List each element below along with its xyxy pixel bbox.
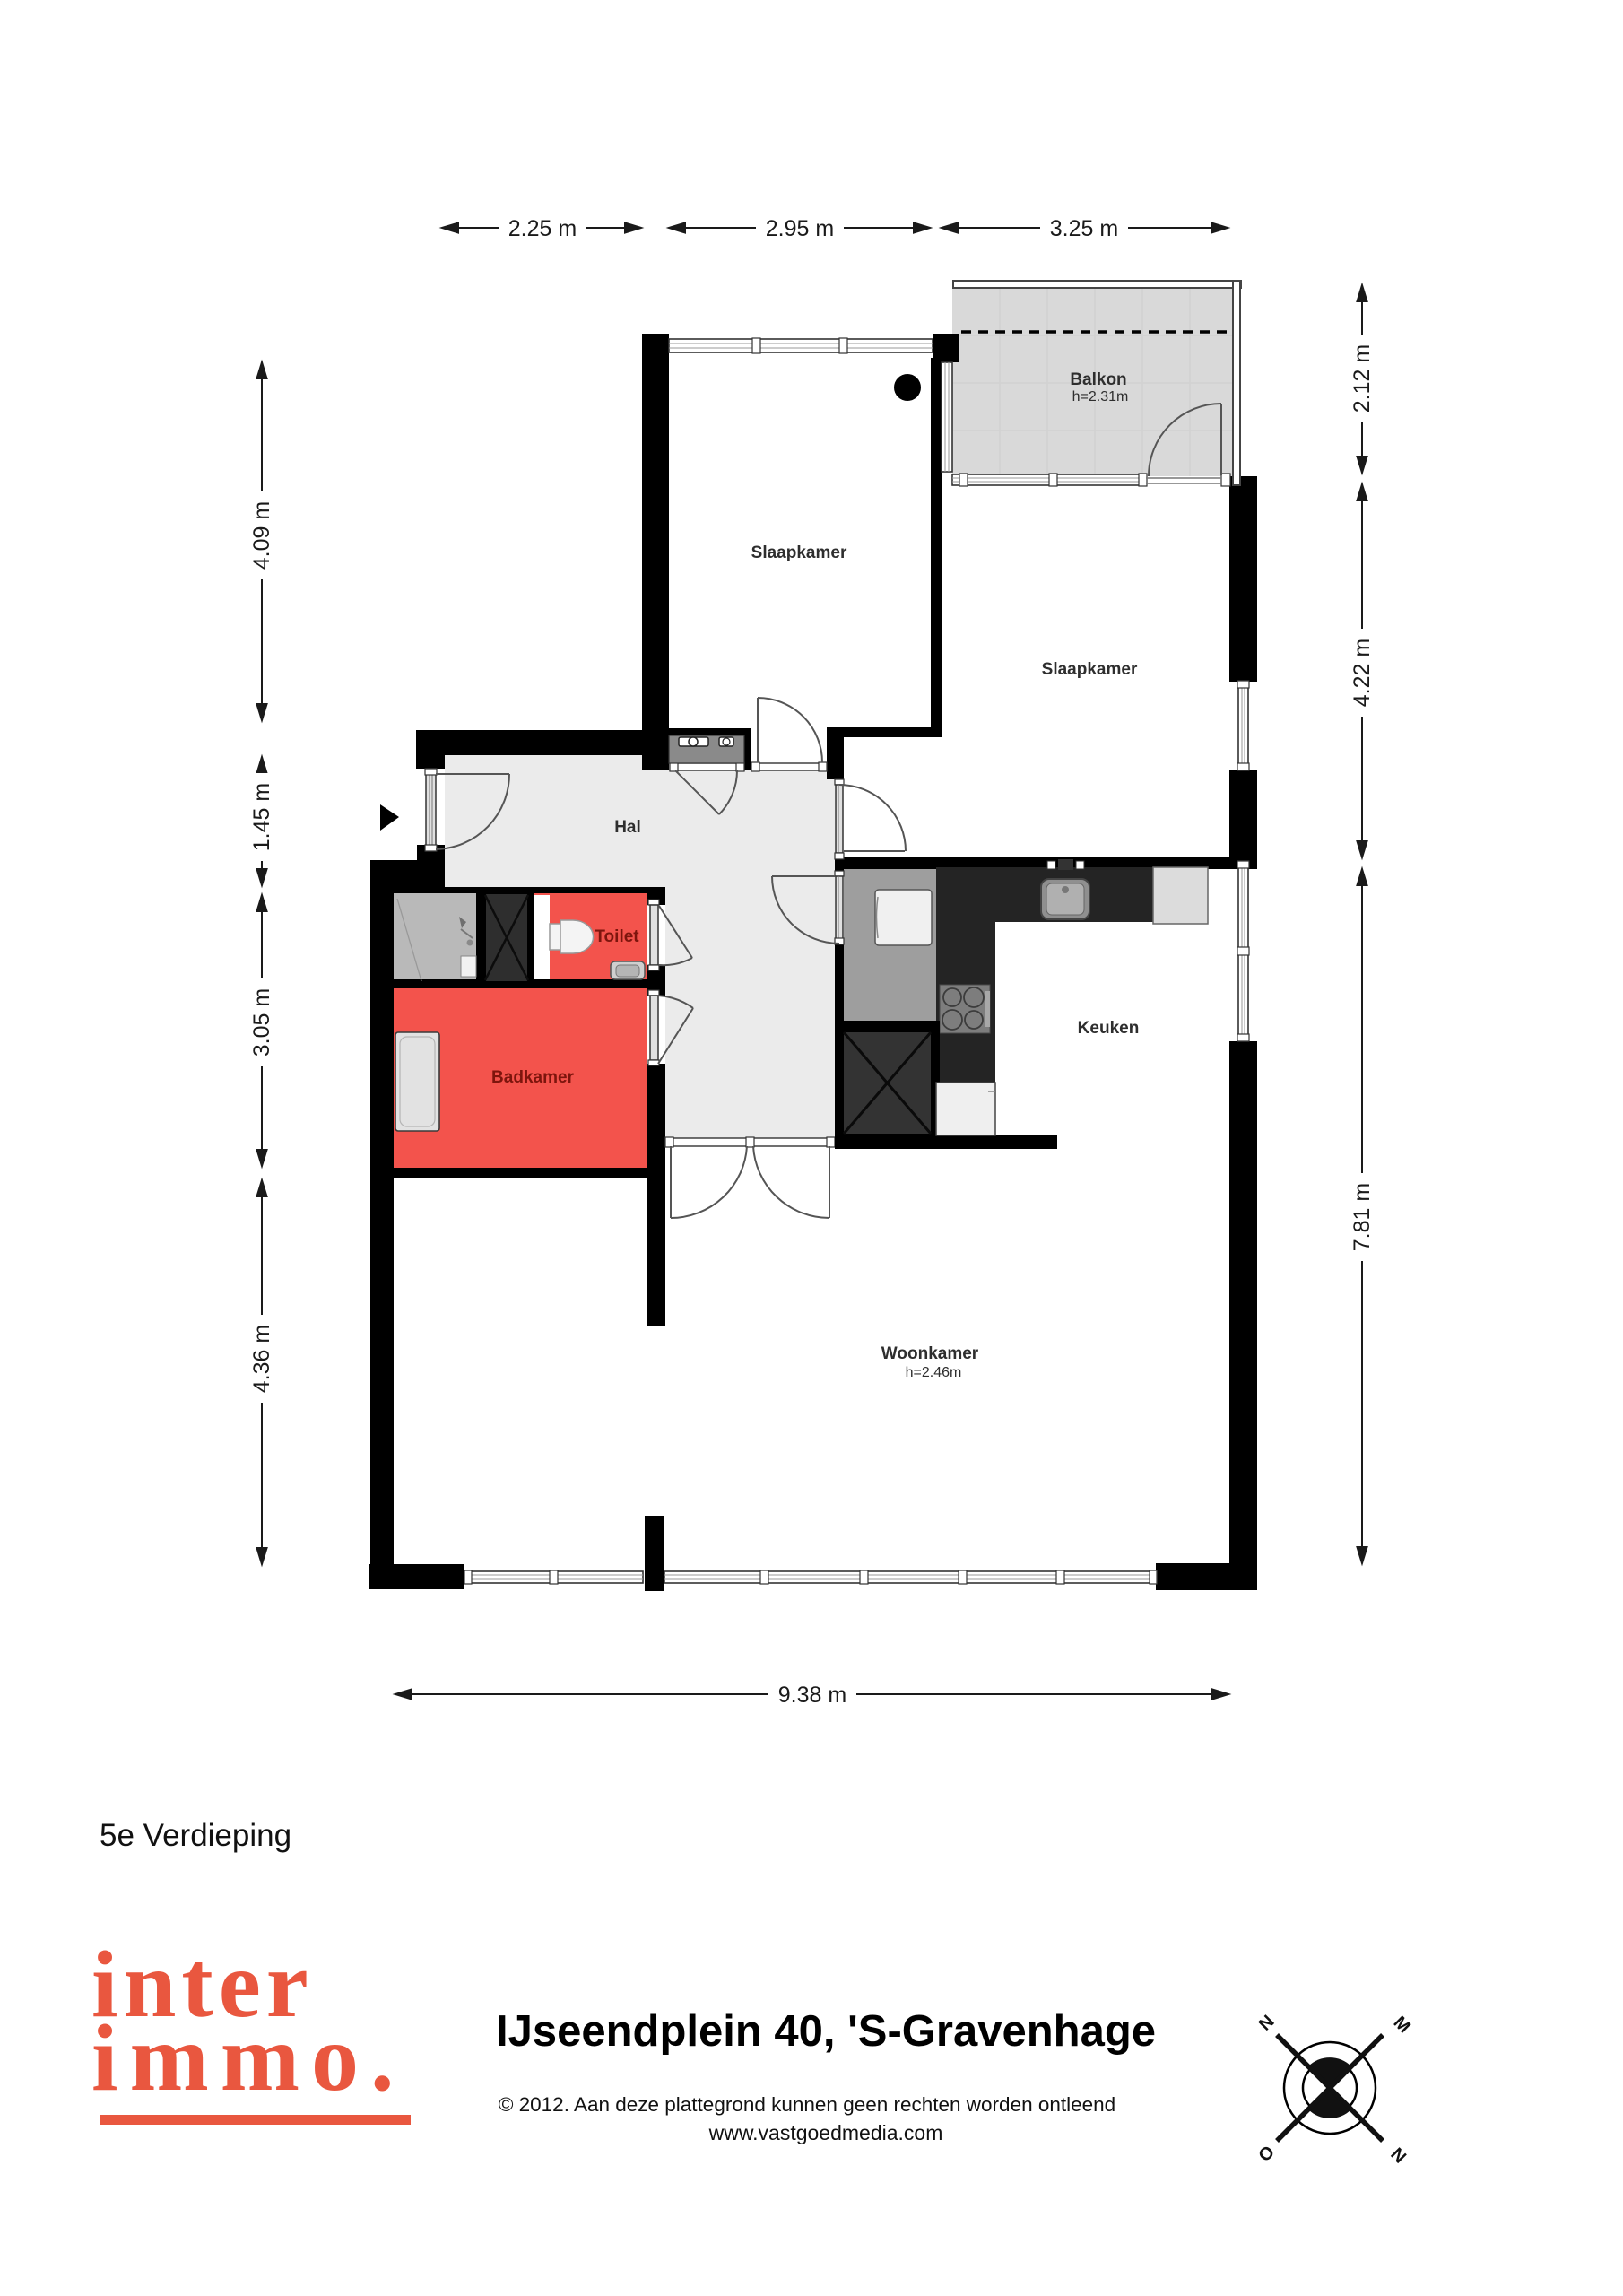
svg-text:h=2.31m: h=2.31m [1072,389,1129,404]
svg-text:Keuken: Keuken [1078,1019,1140,1038]
svg-text:5e Verdieping: 5e Verdieping [100,1818,291,1853]
svg-text:Badkamer: Badkamer [491,1068,574,1087]
svg-text:Slaapkamer: Slaapkamer [1042,660,1138,679]
svg-text:Slaapkamer: Slaapkamer [751,544,847,562]
svg-text:2.95 m: 2.95 m [766,216,834,241]
svg-text:2.25 m: 2.25 m [508,216,577,241]
svg-text:1.45 m: 1.45 m [249,783,274,851]
svg-text:h=2.46m: h=2.46m [906,1365,962,1380]
svg-text:www.vastgoedmedia.com: www.vastgoedmedia.com [708,2121,943,2144]
svg-text:immo.: immo. [91,2005,406,2110]
svg-text:IJseendplein 40, 'S-Gravenhage: IJseendplein 40, 'S-Gravenhage [496,2007,1156,2056]
svg-text:9.38 m: 9.38 m [778,1683,846,1708]
svg-text:3.05 m: 3.05 m [249,988,274,1057]
svg-text:4.22 m: 4.22 m [1350,639,1375,707]
svg-text:4.09 m: 4.09 m [249,501,274,570]
svg-text:3.25 m: 3.25 m [1050,216,1118,241]
svg-text:Toilet: Toilet [595,927,639,946]
svg-text:4.36 m: 4.36 m [249,1325,274,1393]
svg-text:2.12 m: 2.12 m [1350,344,1375,413]
svg-text:Hal: Hal [614,818,641,837]
svg-text:Woonkamer: Woonkamer [881,1344,979,1363]
svg-text:© 2012. Aan deze plattegrond k: © 2012. Aan deze plattegrond kunnen geen… [499,2093,1115,2116]
svg-text:7.81 m: 7.81 m [1350,1183,1375,1251]
svg-text:Balkon: Balkon [1070,370,1126,389]
